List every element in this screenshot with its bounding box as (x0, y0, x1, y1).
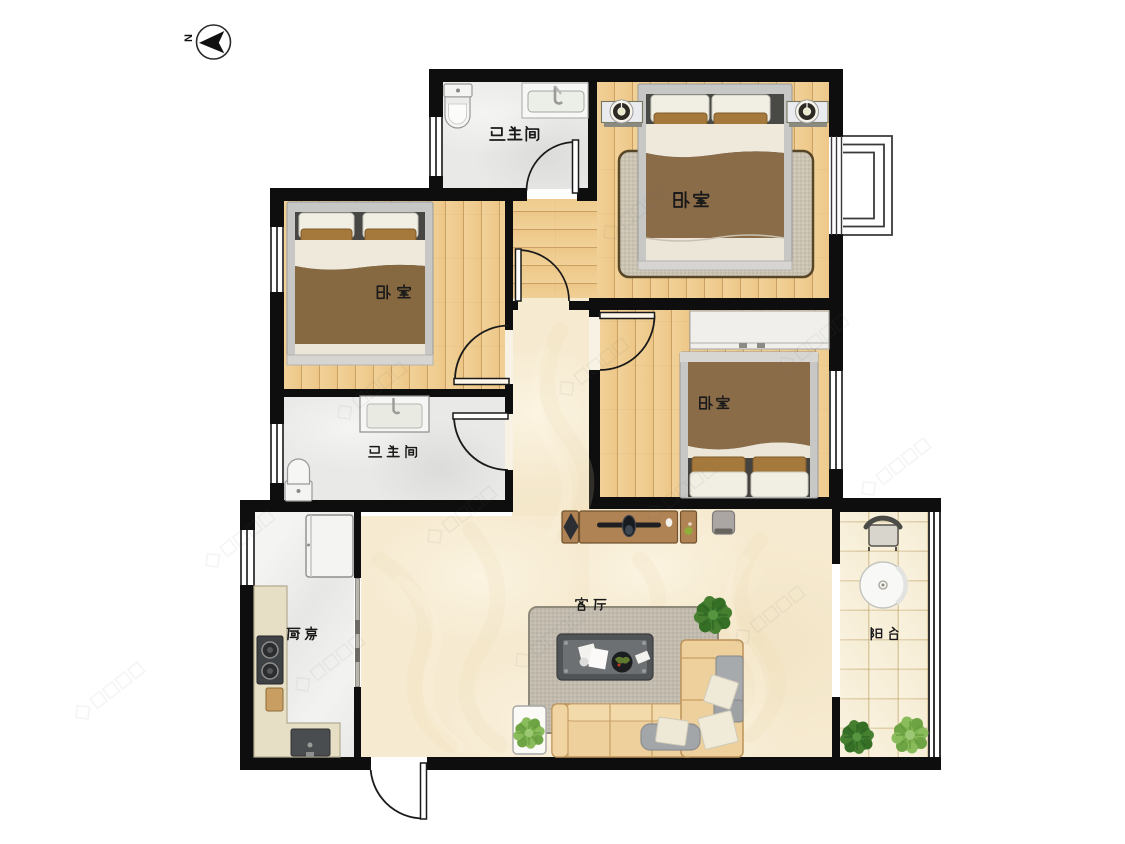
svg-text:N: N (183, 34, 195, 42)
